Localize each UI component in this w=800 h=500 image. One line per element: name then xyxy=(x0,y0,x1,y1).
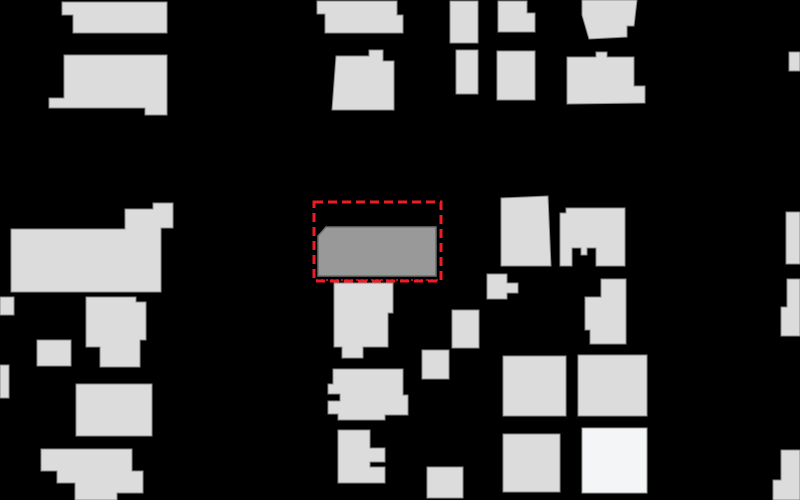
bldg-top-left-a[interactable] xyxy=(62,2,167,33)
bldg-edge-left-1[interactable] xyxy=(0,297,14,315)
bldg-square-left[interactable] xyxy=(37,340,71,366)
bldg-bottom-mid-c[interactable] xyxy=(503,434,560,492)
bldg-lower-left[interactable] xyxy=(76,384,152,436)
bldg-bottom-square[interactable] xyxy=(427,467,463,498)
bldg-center-lower[interactable] xyxy=(328,369,408,420)
bldg-edge-right-1[interactable] xyxy=(789,52,800,71)
bldg-right-mid-a[interactable] xyxy=(501,196,551,266)
bldg-top-small-3[interactable] xyxy=(456,50,478,94)
bldg-selected[interactable] xyxy=(318,227,436,276)
bldg-small-mid-2[interactable] xyxy=(452,310,479,348)
bldg-edge-right-2[interactable] xyxy=(786,212,800,264)
bldg-bottom-bright[interactable] xyxy=(582,428,647,493)
bldg-below-selected[interactable] xyxy=(334,283,393,358)
bldg-edge-left-2[interactable] xyxy=(0,365,9,398)
bldg-top-small-1[interactable] xyxy=(450,1,478,43)
bldg-bottom-mid-b[interactable] xyxy=(578,355,647,416)
bldg-top-right-b[interactable] xyxy=(567,52,645,104)
bldg-top-left-b[interactable] xyxy=(49,55,167,115)
bldg-bottom-mid-a[interactable] xyxy=(503,356,566,416)
bldg-top-small-4[interactable] xyxy=(497,51,535,100)
map-viewport xyxy=(0,0,800,500)
bldg-small-mid-3[interactable] xyxy=(422,350,449,379)
bldg-top-mid-a[interactable] xyxy=(317,1,403,33)
building-footprint-map xyxy=(0,0,800,500)
